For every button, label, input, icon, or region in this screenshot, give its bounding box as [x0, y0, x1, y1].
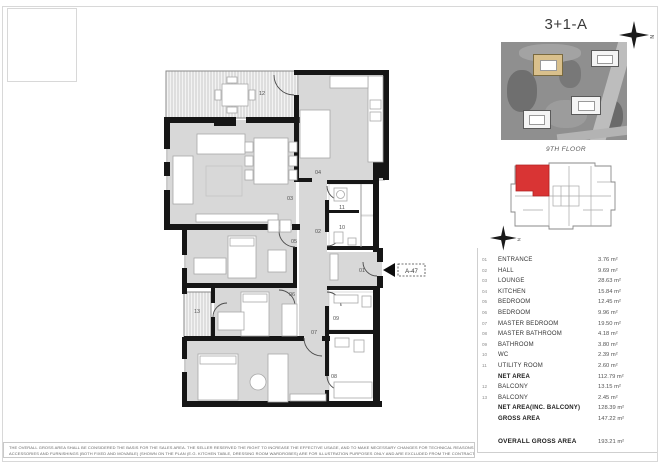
room-label: 01: [359, 268, 365, 274]
table-cell-val: 4.18 m²: [598, 331, 650, 337]
table-row: 12BALCONY13.15 m²: [482, 384, 650, 395]
table-cell-val: 9.69 m²: [598, 268, 650, 274]
table-row: 13BALCONY2.45 m²: [482, 395, 650, 406]
floorplan-sheet: 12030402111005061307010908 A-47 3+1-A N …: [0, 0, 660, 467]
trees: [507, 70, 537, 112]
table-cell-num: 13: [482, 395, 498, 400]
room-label: 03: [287, 196, 293, 202]
table-cell-num: 12: [482, 384, 498, 389]
overall-gross-area-row: OVERALL GROSS AREA 193.21 m²: [482, 438, 650, 445]
table-row: 10WC2.39 m²: [482, 352, 650, 363]
table-bottom-line: [477, 452, 657, 453]
room-label: 08: [331, 374, 337, 380]
table-cell-lbl: KITCHEN: [498, 289, 598, 295]
table-row: NET AREA(INC. BALCONY)128.39 m²: [482, 405, 650, 416]
room-label: 02: [315, 229, 321, 235]
room-label: 05: [291, 239, 297, 245]
room-label: 10: [339, 225, 345, 231]
table-cell-val: 2.45 m²: [598, 395, 650, 401]
table-cell-num: 08: [482, 331, 498, 336]
table-row: GROSS AREA147.22 m²: [482, 416, 650, 427]
table-cell-num: 01: [482, 257, 498, 262]
table-cell-val: 128.39 m²: [598, 405, 650, 411]
table-cell-val: 15.84 m²: [598, 289, 650, 295]
disclaimer-box: THE OVERALL GROSS AREA SHALL BE CONSIDER…: [3, 442, 475, 458]
compass-icon: N: [487, 222, 525, 254]
building: [571, 96, 601, 115]
table-cell-lbl: BALCONY: [498, 395, 598, 401]
table-row: NET AREA112.79 m²: [482, 374, 650, 385]
table-cell-num: 05: [482, 299, 498, 304]
table-cell-val: 2.39 m²: [598, 352, 650, 358]
table-cell-num: 04: [482, 289, 498, 294]
table-cell-val: 12.45 m²: [598, 299, 650, 305]
table-row: 09BATHROOM3.80 m²: [482, 342, 650, 353]
highlighted-unit: [516, 165, 549, 196]
table-cell-lbl: BALCONY: [498, 384, 598, 390]
table-row: 04KITCHEN15.84 m²: [482, 289, 650, 300]
table-cell-lbl: ENTRANCE: [498, 257, 598, 263]
table-cell-num: 07: [482, 321, 498, 326]
compass-letter: N: [648, 35, 654, 39]
entrance-arrow-icon: [383, 263, 395, 277]
table-row: 07MASTER BEDROOM19.50 m²: [482, 321, 650, 332]
table-row: 03LOUNGE28.63 m²: [482, 278, 650, 289]
table-row: 06BEDROOM9.96 m²: [482, 310, 650, 321]
table-cell-lbl: GROSS AREA: [498, 416, 598, 422]
table-cell-num: 09: [482, 342, 498, 347]
table-row: 11UTILITY ROOM2.60 m²: [482, 363, 650, 374]
table-cell-val: 112.79 m²: [598, 374, 650, 380]
highlighted-building: [533, 54, 563, 76]
table-cell-val: 28.63 m²: [598, 278, 650, 284]
building: [591, 50, 619, 67]
table-cell-val: 3.76 m²: [598, 257, 650, 263]
disclaimer-line: THE OVERALL GROSS AREA SHALL BE CONSIDER…: [9, 445, 469, 451]
table-row: 01ENTRANCE3.76 m²: [482, 257, 650, 268]
table-cell-lbl: UTILITY ROOM: [498, 363, 598, 369]
table-cell-lbl: MASTER BATHROOM: [498, 331, 598, 337]
table-cell-lbl: NET AREA(INC. BALCONY): [498, 405, 598, 411]
table-cell-val: 9.96 m²: [598, 310, 650, 316]
unit-tag: A-47: [405, 269, 418, 275]
table-cell-lbl: MASTER BEDROOM: [498, 321, 598, 327]
room-label: 12: [259, 91, 265, 97]
plan-wet-rooms: [329, 184, 374, 402]
table-cell-lbl: HALL: [498, 268, 598, 274]
overall-label: OVERALL GROSS AREA: [498, 438, 598, 445]
table-cell-num: 11: [482, 363, 498, 368]
room-label: 13: [194, 309, 200, 315]
table-cell-num: 06: [482, 310, 498, 315]
table-cell-num: 02: [482, 268, 498, 273]
table-cell-lbl: BEDROOM: [498, 299, 598, 305]
room-label: 06: [289, 292, 295, 298]
table-cell-lbl: LOUNGE: [498, 278, 598, 284]
floor-label: 9TH FLOOR: [477, 146, 655, 153]
room-label: 09: [333, 316, 339, 322]
area-table: 01ENTRANCE3.76 m²02HALL9.69 m²03LOUNGE28…: [482, 257, 650, 427]
table-cell-val: 2.60 m²: [598, 363, 650, 369]
table-cell-lbl: BEDROOM: [498, 310, 598, 316]
table-cell-lbl: BATHROOM: [498, 342, 598, 348]
compass-letter: N: [517, 238, 522, 241]
table-cell-val: 3.80 m²: [598, 342, 650, 348]
table-row: 08MASTER BATHROOM4.18 m²: [482, 331, 650, 342]
table-cell-val: 147.22 m²: [598, 416, 650, 422]
table-cell-val: 13.15 m²: [598, 384, 650, 390]
room-label: 04: [315, 170, 321, 176]
table-cell-lbl: WC: [498, 352, 598, 358]
floor-plan: 12030402111005061307010908 A-47: [0, 0, 440, 440]
disclaimer-line: ACCESSORIES AND FURNISHINGS (BOTH FIXED …: [9, 451, 469, 457]
table-cell-lbl: NET AREA: [498, 374, 598, 380]
site-aerial-photo: [501, 42, 627, 140]
table-cell-num: 10: [482, 352, 498, 357]
building: [523, 110, 551, 129]
table-cell-num: 03: [482, 278, 498, 283]
overall-value: 193.21 m²: [598, 439, 650, 445]
table-divider-line: [477, 248, 478, 452]
room-label: 07: [311, 330, 317, 336]
room-label: 11: [339, 205, 345, 211]
table-cell-val: 19.50 m²: [598, 321, 650, 327]
table-row: 05BEDROOM12.45 m²: [482, 299, 650, 310]
table-row: 02HALL9.69 m²: [482, 268, 650, 279]
